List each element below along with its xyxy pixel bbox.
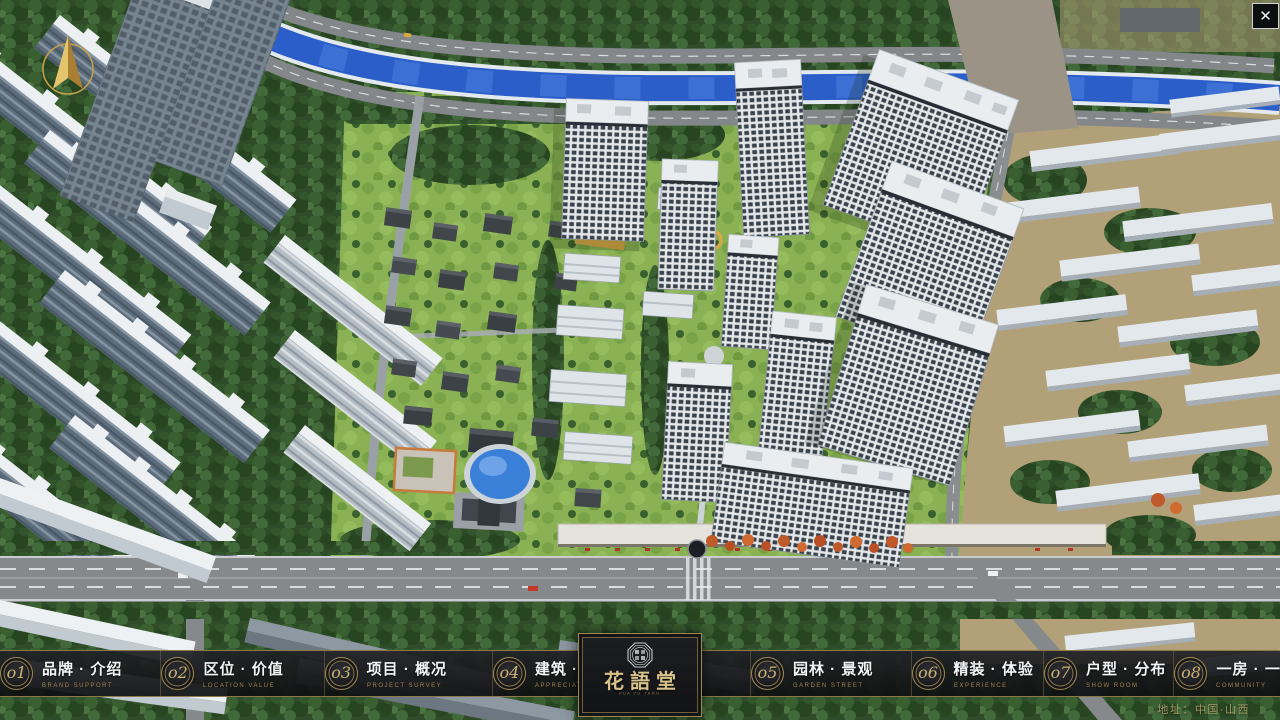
nav-item-interior-experience[interactable]: o6 精装 · 体验 EXPERIENCE [911,651,1043,696]
nav-item-number: o5 [758,663,778,682]
nav-item-number: o2 [168,663,188,682]
close-button[interactable]: ✕ [1252,3,1279,29]
nav-item-label: 区位 · 价值 [203,658,283,679]
masterplan-aerial-render [0,0,1280,720]
nav-item-number: o3 [331,663,351,682]
nav-item-label: 户型 · 分布 [1086,658,1166,679]
nav-number-badge: o5 [751,657,784,690]
nav-item-number: o1 [7,663,27,682]
nav-item-label: 一房 · 一景 [1216,658,1280,679]
nav-item-brand-intro[interactable]: o1 品牌 · 介绍 BRAND SUPPORT [0,651,161,696]
nav-item-location-value[interactable]: o2 区位 · 价值 LOCATION VALUE [161,651,324,696]
nav-number-badge: o8 [1174,657,1207,690]
nav-number-badge: o7 [1044,657,1077,690]
nav-number-badge: o6 [912,657,945,690]
nav-item-label: 精装 · 体验 [954,658,1034,679]
nav-item-sublabel: PROJECT SURVEY [367,682,442,687]
nav-item-garden-landscape[interactable]: o5 园林 · 景观 GARDEN STREET [750,651,911,696]
nav-item-number: o7 [1051,663,1071,682]
nav-item-sublabel: BRAND SUPPORT [42,682,113,687]
nav-number-badge: o1 [0,657,33,690]
brand-logo-title: 花語堂 [598,670,682,692]
nav-item-number: o8 [1181,663,1201,682]
nav-item-label: 项目 · 概况 [367,658,447,679]
brand-logo-box[interactable]: 花語堂 HUA YU TANG [578,633,702,717]
project-address: 地址：中国·山西 [1157,701,1250,717]
nav-item-number: o6 [918,663,938,682]
nav-item-sublabel: EXPERIENCE [954,682,1008,687]
nav-item-sublabel: LOCATION VALUE [203,682,275,687]
nav-number-badge: o3 [325,657,358,690]
brand-seal-icon [626,641,654,669]
nav-item-sublabel: COMMUNITY [1216,682,1267,687]
nav-group-left: o1 品牌 · 介绍 BRAND SUPPORT o2 区位 · 价值 LOCA… [0,651,530,696]
brand-logo-tagline: HUA YU TANG [619,692,661,694]
nav-group-right: o5 园林 · 景观 GARDEN STREET o6 精装 · 体验 EXPE… [750,651,1280,696]
entrance-plaza-circle [688,540,706,558]
nav-item-room-view[interactable]: o8 一房 · 一景 COMMUNITY [1173,651,1280,696]
nav-number-badge: o4 [493,657,526,690]
nav-item-sublabel: SHOW ROOM [1086,682,1139,687]
nav-item-number: o4 [499,663,519,682]
nav-item-floorplan-distribution[interactable]: o7 户型 · 分布 SHOW ROOM [1043,651,1174,696]
nav-item-label: 品牌 · 介绍 [42,658,122,679]
presentation-stage: ✕ o1 品牌 · 介绍 BRAND SUPPORT o2 区位 · 价值 LO… [0,0,1280,720]
nav-item-label: 园林 · 景观 [793,658,873,679]
nav-number-badge: o2 [161,657,194,690]
nav-item-sublabel: GARDEN STREET [793,682,864,687]
nav-item-project-survey[interactable]: o3 项目 · 概况 PROJECT SURVEY [325,651,493,696]
